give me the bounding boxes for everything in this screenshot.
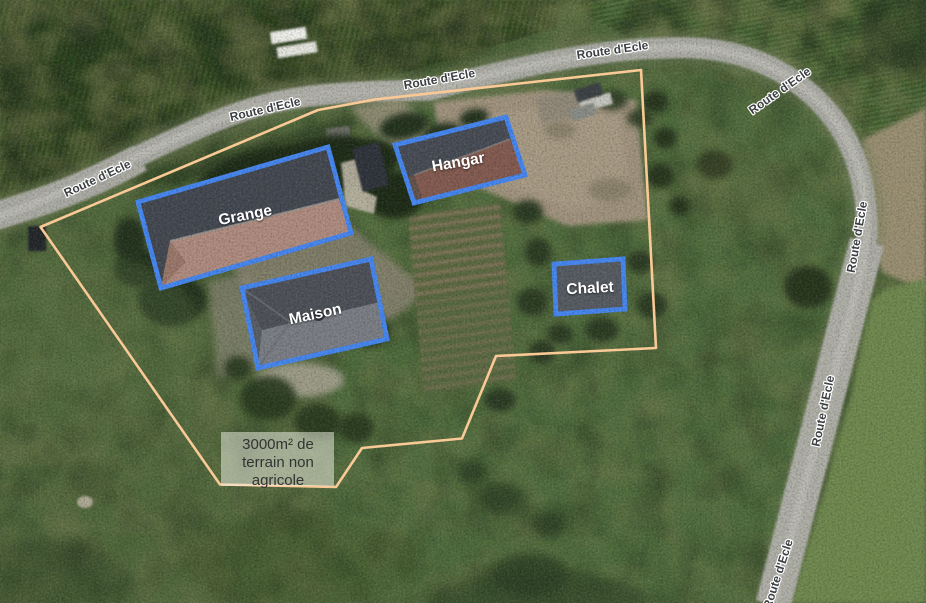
- svg-text:Chalet: Chalet: [566, 279, 614, 298]
- svg-text:3000m² de: 3000m² de: [242, 436, 314, 453]
- svg-text:agricole: agricole: [252, 472, 305, 489]
- svg-text:terrain non: terrain non: [242, 454, 314, 471]
